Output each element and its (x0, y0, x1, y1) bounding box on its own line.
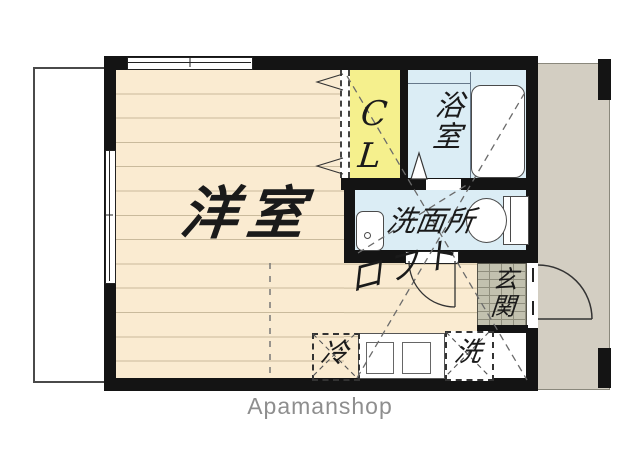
window-left (105, 150, 116, 284)
floor-plan: 洋室 CL 浴室 洗面所 玄関 ロフト 冷 洗 Apamanshop (0, 0, 640, 455)
toilet-tank-divider (510, 197, 511, 242)
window-top (127, 57, 253, 70)
washer-label: 洗 (443, 339, 493, 367)
entrance-door-opening (528, 263, 538, 328)
watermark-text: Apamanshop (210, 393, 430, 420)
bathroom-door-opening (426, 179, 461, 190)
building-wall-notch-top (598, 59, 611, 100)
closet-label: CL (349, 94, 394, 178)
living-room-label: 洋室 (149, 184, 345, 244)
kitchen-burner-right (402, 342, 431, 374)
bathtub (471, 85, 525, 178)
kitchen-burner-left (366, 342, 394, 374)
balcony-outline (33, 67, 106, 383)
bath-unit-edge-line (408, 83, 471, 84)
washroom-label: 洗面所 (385, 206, 477, 236)
wall-right-lower (526, 328, 538, 391)
washbasin-drain (364, 232, 371, 239)
wall-washroom-left (344, 190, 355, 250)
refrigerator-label: 冷 (310, 340, 359, 368)
wall-closet-bath-divider (400, 70, 408, 178)
building-wall-notch-bottom (598, 348, 611, 388)
bathroom-label: 浴室 (428, 90, 464, 152)
washbasin (356, 211, 384, 251)
entrance-label: 玄関 (487, 266, 518, 320)
exterior-corridor (537, 63, 610, 390)
